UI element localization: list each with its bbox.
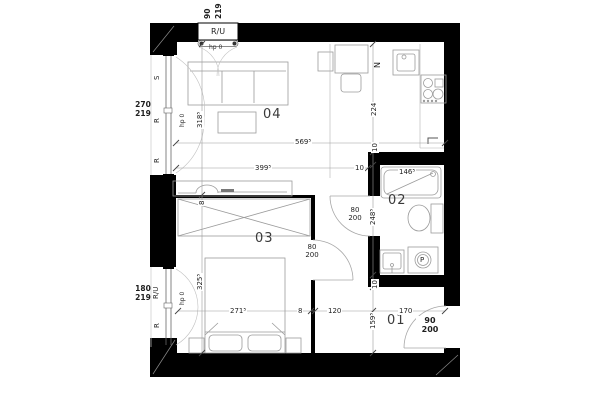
dim-wall10-top: 10	[371, 142, 379, 153]
nightstand-right	[286, 338, 301, 353]
sofa	[188, 62, 288, 105]
window-left-lower-size: 180 219	[132, 285, 154, 302]
door-label-bedroom: 80 200	[301, 243, 323, 259]
window-top-size-h: 219	[215, 2, 224, 20]
cooktop	[421, 75, 446, 103]
dim-bath-width: 146⁵	[398, 168, 416, 176]
dim-bedroom-height: 325⁵	[196, 273, 204, 291]
coffee-table	[218, 112, 256, 133]
kitchen-sink	[393, 50, 419, 75]
room-label-04: 04	[262, 108, 283, 123]
door-bath-h: 200	[345, 214, 365, 222]
window-left-upper-size: 270 219	[132, 101, 154, 118]
dim-living-width: 399⁵	[254, 164, 272, 172]
window-top-label: R/U	[198, 27, 238, 36]
dim-partition-h: 8	[297, 307, 303, 315]
dim-wall10-left: 10	[354, 164, 365, 172]
room-label-03: 03	[254, 232, 275, 247]
toilet	[408, 204, 443, 233]
window-left-lower-label-ru: R/U	[152, 287, 160, 299]
floor-plan-drawing	[0, 0, 600, 400]
kitchen-counter	[330, 44, 444, 178]
dim-corridor-width: 120	[327, 307, 342, 315]
dim-bedroom-width: 271⁵	[229, 307, 247, 315]
washbasin	[380, 250, 404, 273]
door-bath-w: 80	[345, 206, 365, 214]
door-entrance-w: 90	[417, 316, 443, 325]
dim-hall-width: 170	[398, 307, 413, 315]
window-left-lower-label-r: R	[153, 323, 161, 328]
window-left-lower-note: hp 0	[180, 292, 187, 305]
window-left-upper-label-r1: R	[153, 118, 161, 123]
dim-total-width: 569⁵	[294, 138, 312, 146]
door-label-entrance: 90 200	[416, 316, 444, 334]
door-entrance-h: 200	[417, 325, 443, 334]
window-left-lower	[151, 265, 198, 349]
desk-chair	[341, 74, 361, 92]
window-left-lower-size-h: 219	[132, 294, 154, 303]
room-label-02: 02	[387, 194, 408, 209]
window-top-note: hp 0	[209, 45, 222, 52]
window-left-upper-label-s: S	[153, 76, 161, 80]
washer-program-label: P	[420, 256, 424, 264]
dim-partition-v: 8	[198, 200, 206, 206]
dim-hall-height: 159⁵	[369, 312, 377, 330]
bed	[205, 258, 285, 353]
floor-plan: 04 03 02 01 569⁵ 399⁵ 271⁵ 8 120 170 146…	[0, 0, 600, 400]
window-left-upper-label-r2: R	[153, 158, 161, 163]
window-left-upper-note: hp 0	[180, 114, 187, 127]
door-label-bath: 80 200	[344, 206, 366, 222]
dim-living-height: 318⁵	[196, 111, 204, 129]
door-bedroom-h: 200	[302, 251, 322, 259]
window-left-upper-size-h: 219	[132, 110, 154, 119]
dim-kitchen-depth: 224	[370, 102, 378, 117]
room-label-01: 01	[386, 314, 407, 329]
door-bedroom-w: 80	[302, 243, 322, 251]
dim-wall10-bottom: 10	[371, 279, 379, 290]
window-top-size-w: 90	[204, 8, 213, 20]
north-label: N	[373, 62, 382, 68]
desk	[318, 45, 368, 73]
dim-bath-height: 248⁵	[369, 208, 377, 226]
sideboard-tv	[173, 181, 292, 196]
